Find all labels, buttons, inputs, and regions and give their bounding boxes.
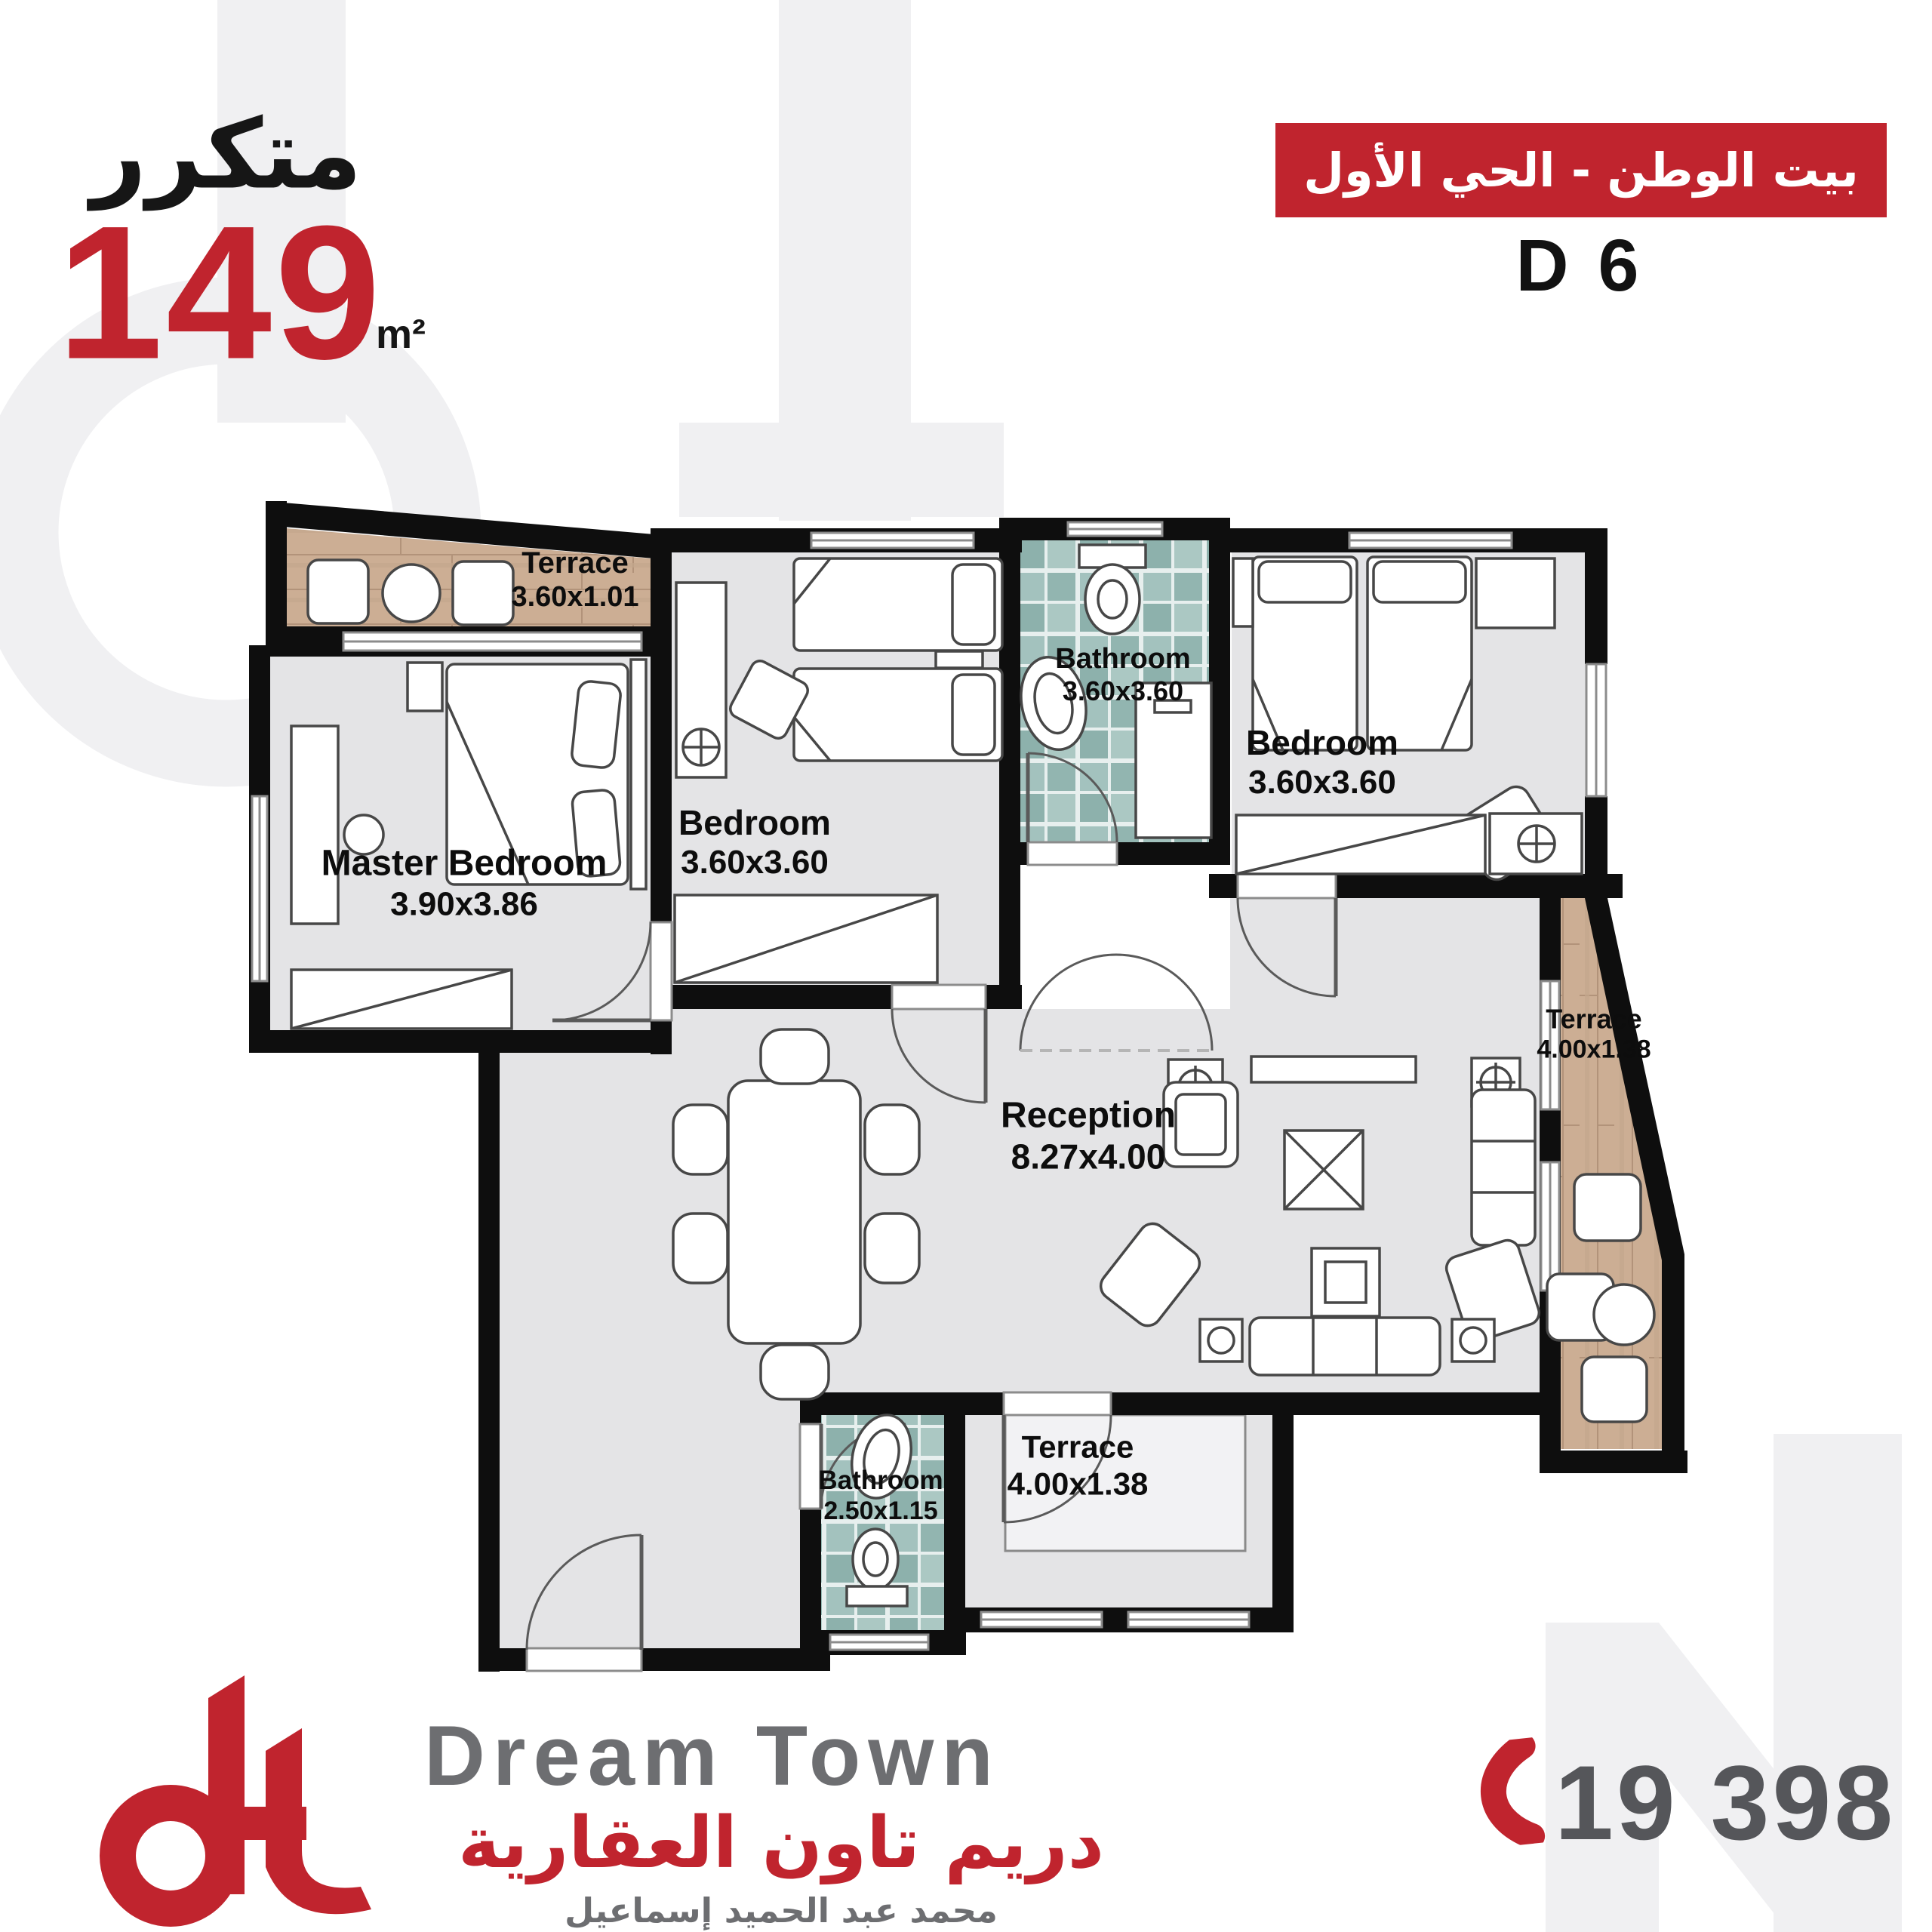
room-label-terrace-right: Terrace 4.00x1.38: [1537, 1003, 1651, 1064]
nightstand-icon: [1233, 558, 1253, 626]
dream-town-logo-monogram: [95, 1663, 405, 1932]
side-table-icon: [1452, 1319, 1494, 1361]
unit-code: D 6: [1516, 223, 1644, 308]
room-label-terrace-bottom: Terrace 4.00x1.38: [1008, 1429, 1149, 1502]
nightstand-icon: [936, 651, 983, 668]
wardrobe-icon: [1236, 815, 1485, 874]
room-label-reception: Reception 8.27x4.00: [1001, 1094, 1176, 1177]
floor-plan-poster: متكرر 149 m² بيت الوطن - الحي الأول D 6 …: [0, 0, 1932, 1932]
logo-name-ar: دريم تاون العقارية: [423, 1802, 1140, 1884]
nightstand-icon: [408, 663, 442, 711]
terrace-chair-icon: [1574, 1174, 1641, 1241]
dining-chair-icon: [865, 1214, 919, 1283]
area-value: 149: [57, 184, 383, 402]
side-table-icon: [1312, 1248, 1380, 1316]
desk-icon: [1490, 814, 1582, 874]
dining-chair-icon: [673, 1105, 728, 1174]
room-label-master-bedroom: Master Bedroom 3.90x3.86: [321, 843, 608, 924]
room-label-bedroom-middle: Bedroom 3.60x3.60: [678, 803, 831, 881]
room-label-bathroom-bottom: Bathroom 2.50x1.15: [818, 1466, 943, 1526]
single-bed-icon: [1253, 557, 1357, 750]
terrace-chair-icon: [308, 560, 368, 623]
dining-chair-icon: [865, 1105, 919, 1174]
dining-chair-icon: [761, 1029, 829, 1084]
sofa-icon: [1472, 1090, 1535, 1245]
logo-owner-ar: محمد عبد الحميد إسماعيل: [423, 1890, 1140, 1930]
dining-chair-icon: [673, 1214, 728, 1283]
coffee-table-icon: [1284, 1131, 1363, 1209]
area-unit: m²: [376, 311, 426, 358]
room-label-bathroom-top: Bathroom 3.60x3.60: [1055, 642, 1190, 707]
terrace-chair-icon: [453, 561, 513, 625]
phone-icon: [1465, 1737, 1551, 1850]
dining-chair-icon: [761, 1345, 829, 1399]
nightstand-icon: [1476, 558, 1555, 628]
room-label-terrace-top: Terrace 3.60x1.01: [511, 546, 638, 614]
terrace-chair-icon: [1582, 1357, 1647, 1422]
single-bed-icon: [794, 669, 1002, 761]
terrace-table-icon: [383, 565, 440, 622]
terrace-table-icon: [1594, 1284, 1654, 1345]
dining-table-icon: [728, 1081, 860, 1343]
single-bed-icon: [1367, 557, 1472, 750]
phone-number: 19 398: [1555, 1742, 1896, 1864]
desk-icon: [676, 583, 726, 777]
sofa-icon: [1250, 1318, 1440, 1375]
side-table-icon: [1200, 1319, 1242, 1361]
project-banner-text: بيت الوطن - الحي الأول: [1275, 123, 1887, 217]
room-label-bedroom-right: Bedroom 3.60x3.60: [1246, 723, 1398, 801]
project-banner: بيت الوطن - الحي الأول: [1275, 123, 1887, 217]
wardrobe-icon: [291, 970, 512, 1029]
tv-console-icon: [1251, 1057, 1416, 1082]
logo-name-en: Dream Town: [424, 1707, 1001, 1804]
single-bed-icon: [794, 558, 1002, 651]
wardrobe-icon: [675, 895, 937, 983]
